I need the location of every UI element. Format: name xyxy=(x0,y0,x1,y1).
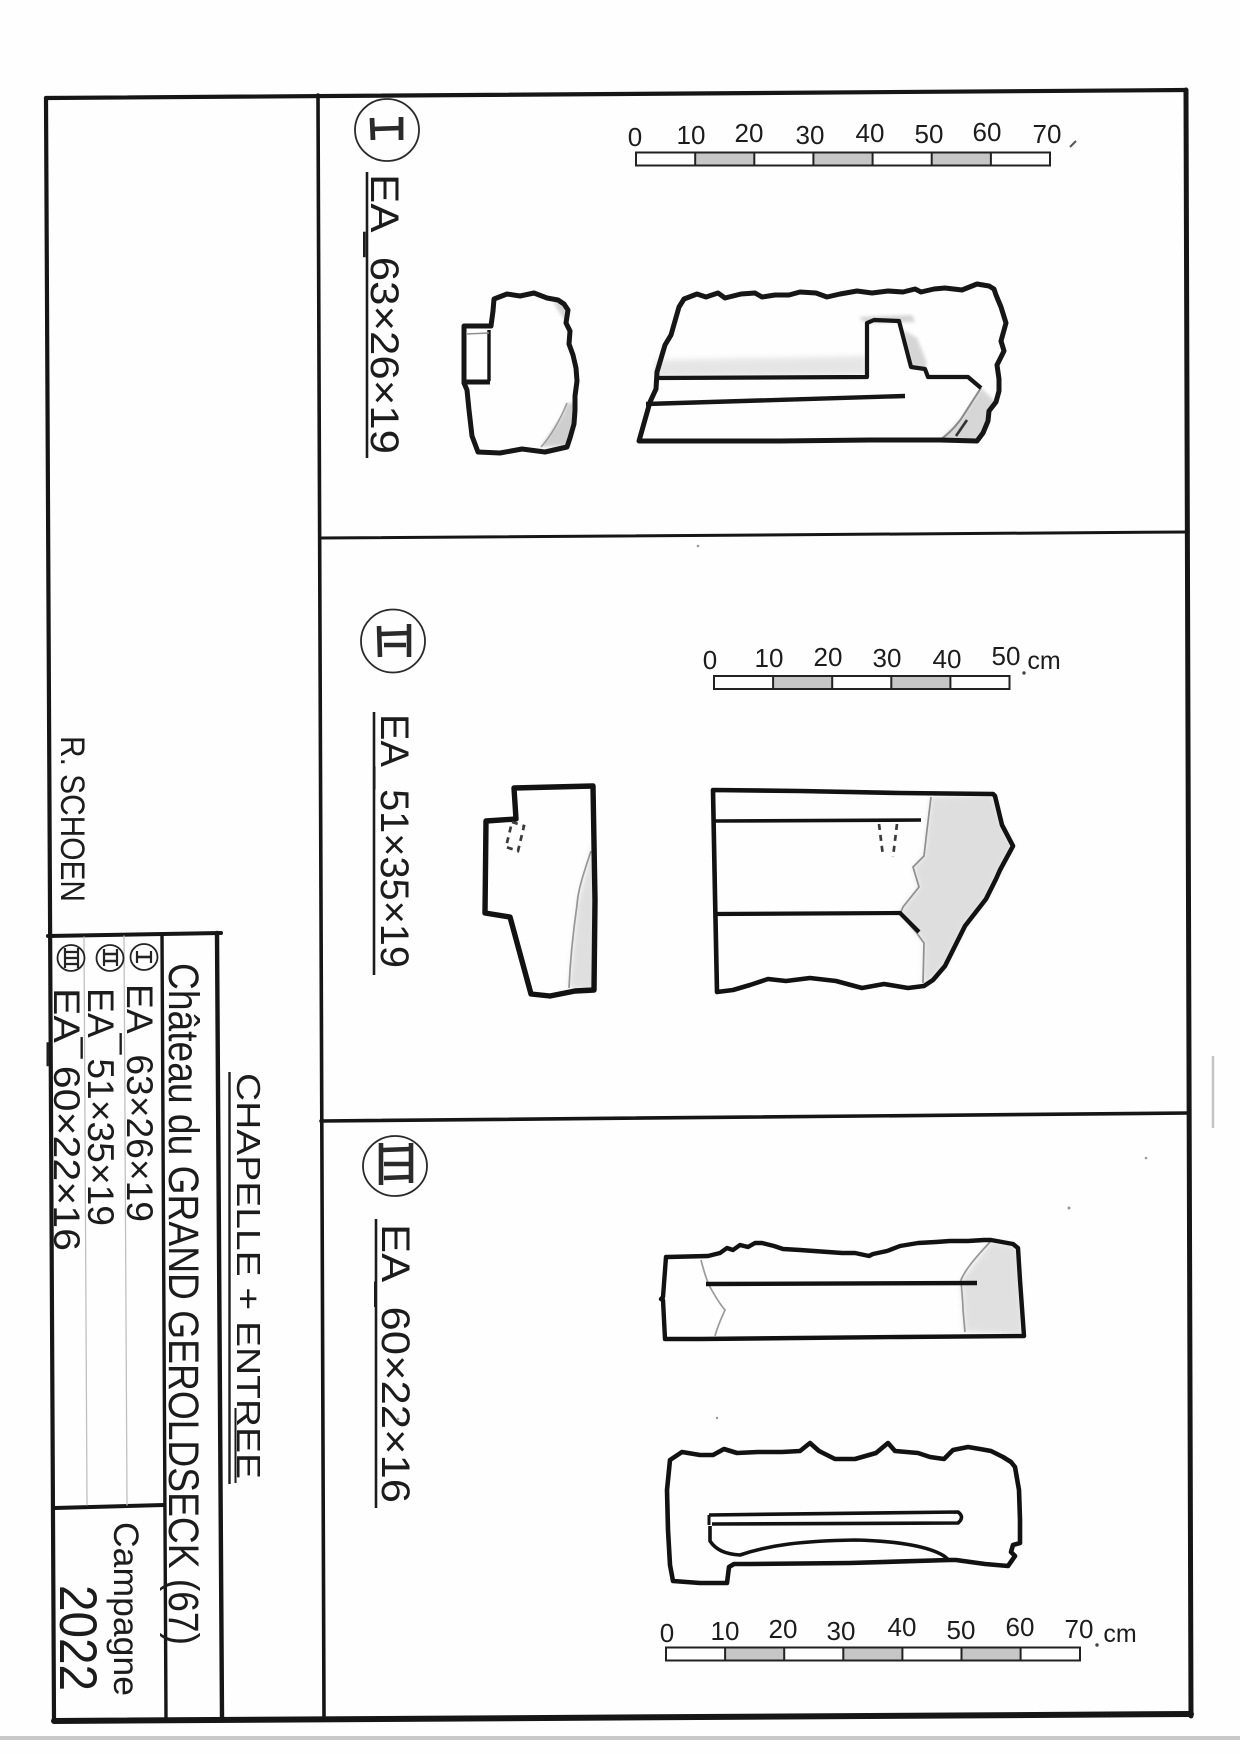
svg-text:Château du GRAND GEROLDSECK (6: Château du GRAND GEROLDSECK (67) xyxy=(159,963,207,1645)
svg-text:50: 50 xyxy=(992,641,1021,671)
svg-text:60: 60 xyxy=(973,117,1002,147)
svg-text:30: 30 xyxy=(827,1616,856,1646)
svg-text:20: 20 xyxy=(735,118,764,148)
svg-text:70: 70 xyxy=(1033,119,1062,149)
svg-text:20: 20 xyxy=(769,1614,798,1644)
svg-text:50: 50 xyxy=(947,1615,976,1645)
svg-text:R. SCHOEN: R. SCHOEN xyxy=(53,736,91,902)
svg-text:10: 10 xyxy=(711,1616,740,1646)
svg-text:40: 40 xyxy=(933,644,962,674)
svg-text:0: 0 xyxy=(703,645,717,675)
svg-text:cm: cm xyxy=(1103,1620,1136,1648)
svg-text:cm: cm xyxy=(1027,647,1060,675)
svg-text:0: 0 xyxy=(660,1618,674,1648)
svg-text:0: 0 xyxy=(628,122,642,152)
svg-text:10: 10 xyxy=(677,120,706,150)
svg-text:50: 50 xyxy=(915,119,944,149)
svg-text:30: 30 xyxy=(873,643,902,673)
svg-text:Campagne: Campagne xyxy=(106,1522,145,1696)
svg-text:70: 70 xyxy=(1065,1614,1094,1644)
svg-text:20: 20 xyxy=(814,642,843,672)
svg-text:2022: 2022 xyxy=(48,1585,107,1691)
svg-text:10: 10 xyxy=(755,643,784,673)
svg-text:EA_63×26×19: EA_63×26×19 xyxy=(362,174,406,454)
svg-text:EA_60×22×16: EA_60×22×16 xyxy=(46,988,87,1251)
svg-text:EA_63×26×19: EA_63×26×19 xyxy=(119,984,160,1222)
svg-text:EA_51×35×19: EA_51×35×19 xyxy=(372,714,416,968)
svg-text:EA_60×22×16: EA_60×22×16 xyxy=(373,1224,417,1503)
svg-text:30: 30 xyxy=(796,120,825,150)
svg-text:60: 60 xyxy=(1006,1612,1035,1642)
svg-text:40: 40 xyxy=(888,1612,917,1642)
svg-text:40: 40 xyxy=(856,118,885,148)
